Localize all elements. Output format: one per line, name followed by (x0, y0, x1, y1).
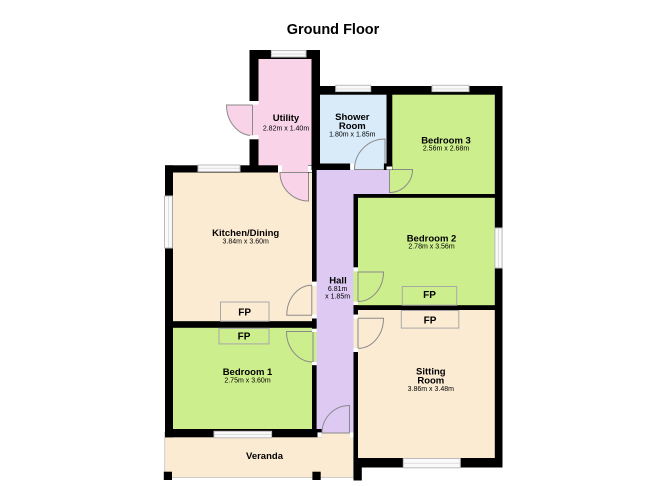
svg-text:1.80m x 1.85m: 1.80m x 1.85m (329, 131, 375, 138)
svg-text:Room: Room (417, 375, 444, 386)
svg-text:Hall: Hall (329, 275, 346, 286)
svg-text:2.78m x 3.56m: 2.78m x 3.56m (408, 243, 454, 250)
svg-text:FP: FP (238, 308, 251, 319)
svg-text:Ground Floor: Ground Floor (287, 22, 380, 38)
svg-text:FP: FP (238, 331, 251, 342)
svg-text:2.82m x 1.40m: 2.82m x 1.40m (263, 126, 309, 133)
svg-text:6.81m: 6.81m (328, 286, 348, 293)
svg-text:2.56m x 2.68m: 2.56m x 2.68m (423, 145, 469, 152)
svg-text:Utility: Utility (273, 113, 300, 124)
svg-text:3.84m x 3.60m: 3.84m x 3.60m (223, 239, 269, 246)
svg-text:Bedroom 1: Bedroom 1 (223, 367, 273, 378)
svg-text:FP: FP (424, 316, 437, 327)
svg-text:Kitchen/Dining: Kitchen/Dining (212, 228, 279, 239)
svg-text:2.75m x 3.60m: 2.75m x 3.60m (224, 378, 270, 385)
svg-text:FP: FP (423, 290, 436, 301)
svg-text:3.86m x 3.48m: 3.86m x 3.48m (408, 386, 454, 393)
svg-text:Veranda: Veranda (246, 451, 284, 462)
svg-text:x 1.85m: x 1.85m (325, 294, 350, 301)
